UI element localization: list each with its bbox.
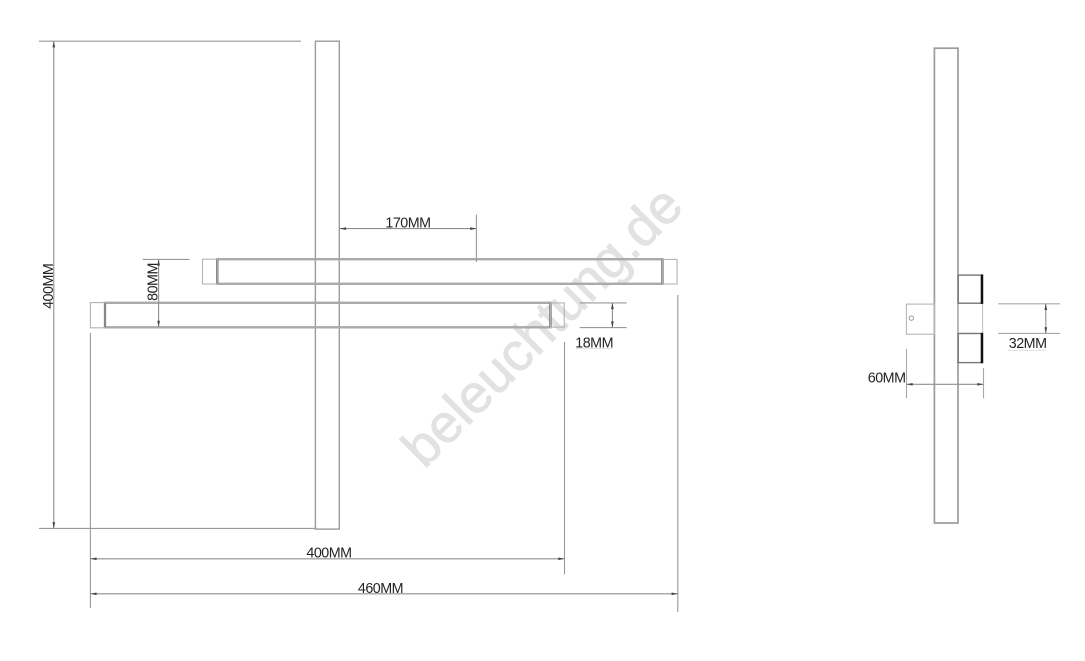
svg-text:170MM: 170MM (385, 215, 430, 231)
svg-text:32MM: 32MM (1009, 336, 1047, 352)
svg-text:400MM: 400MM (306, 546, 351, 562)
svg-text:460MM: 460MM (358, 581, 403, 597)
svg-text:400MM: 400MM (41, 264, 57, 309)
svg-text:80MM: 80MM (146, 263, 162, 301)
svg-text:60MM: 60MM (868, 371, 906, 387)
